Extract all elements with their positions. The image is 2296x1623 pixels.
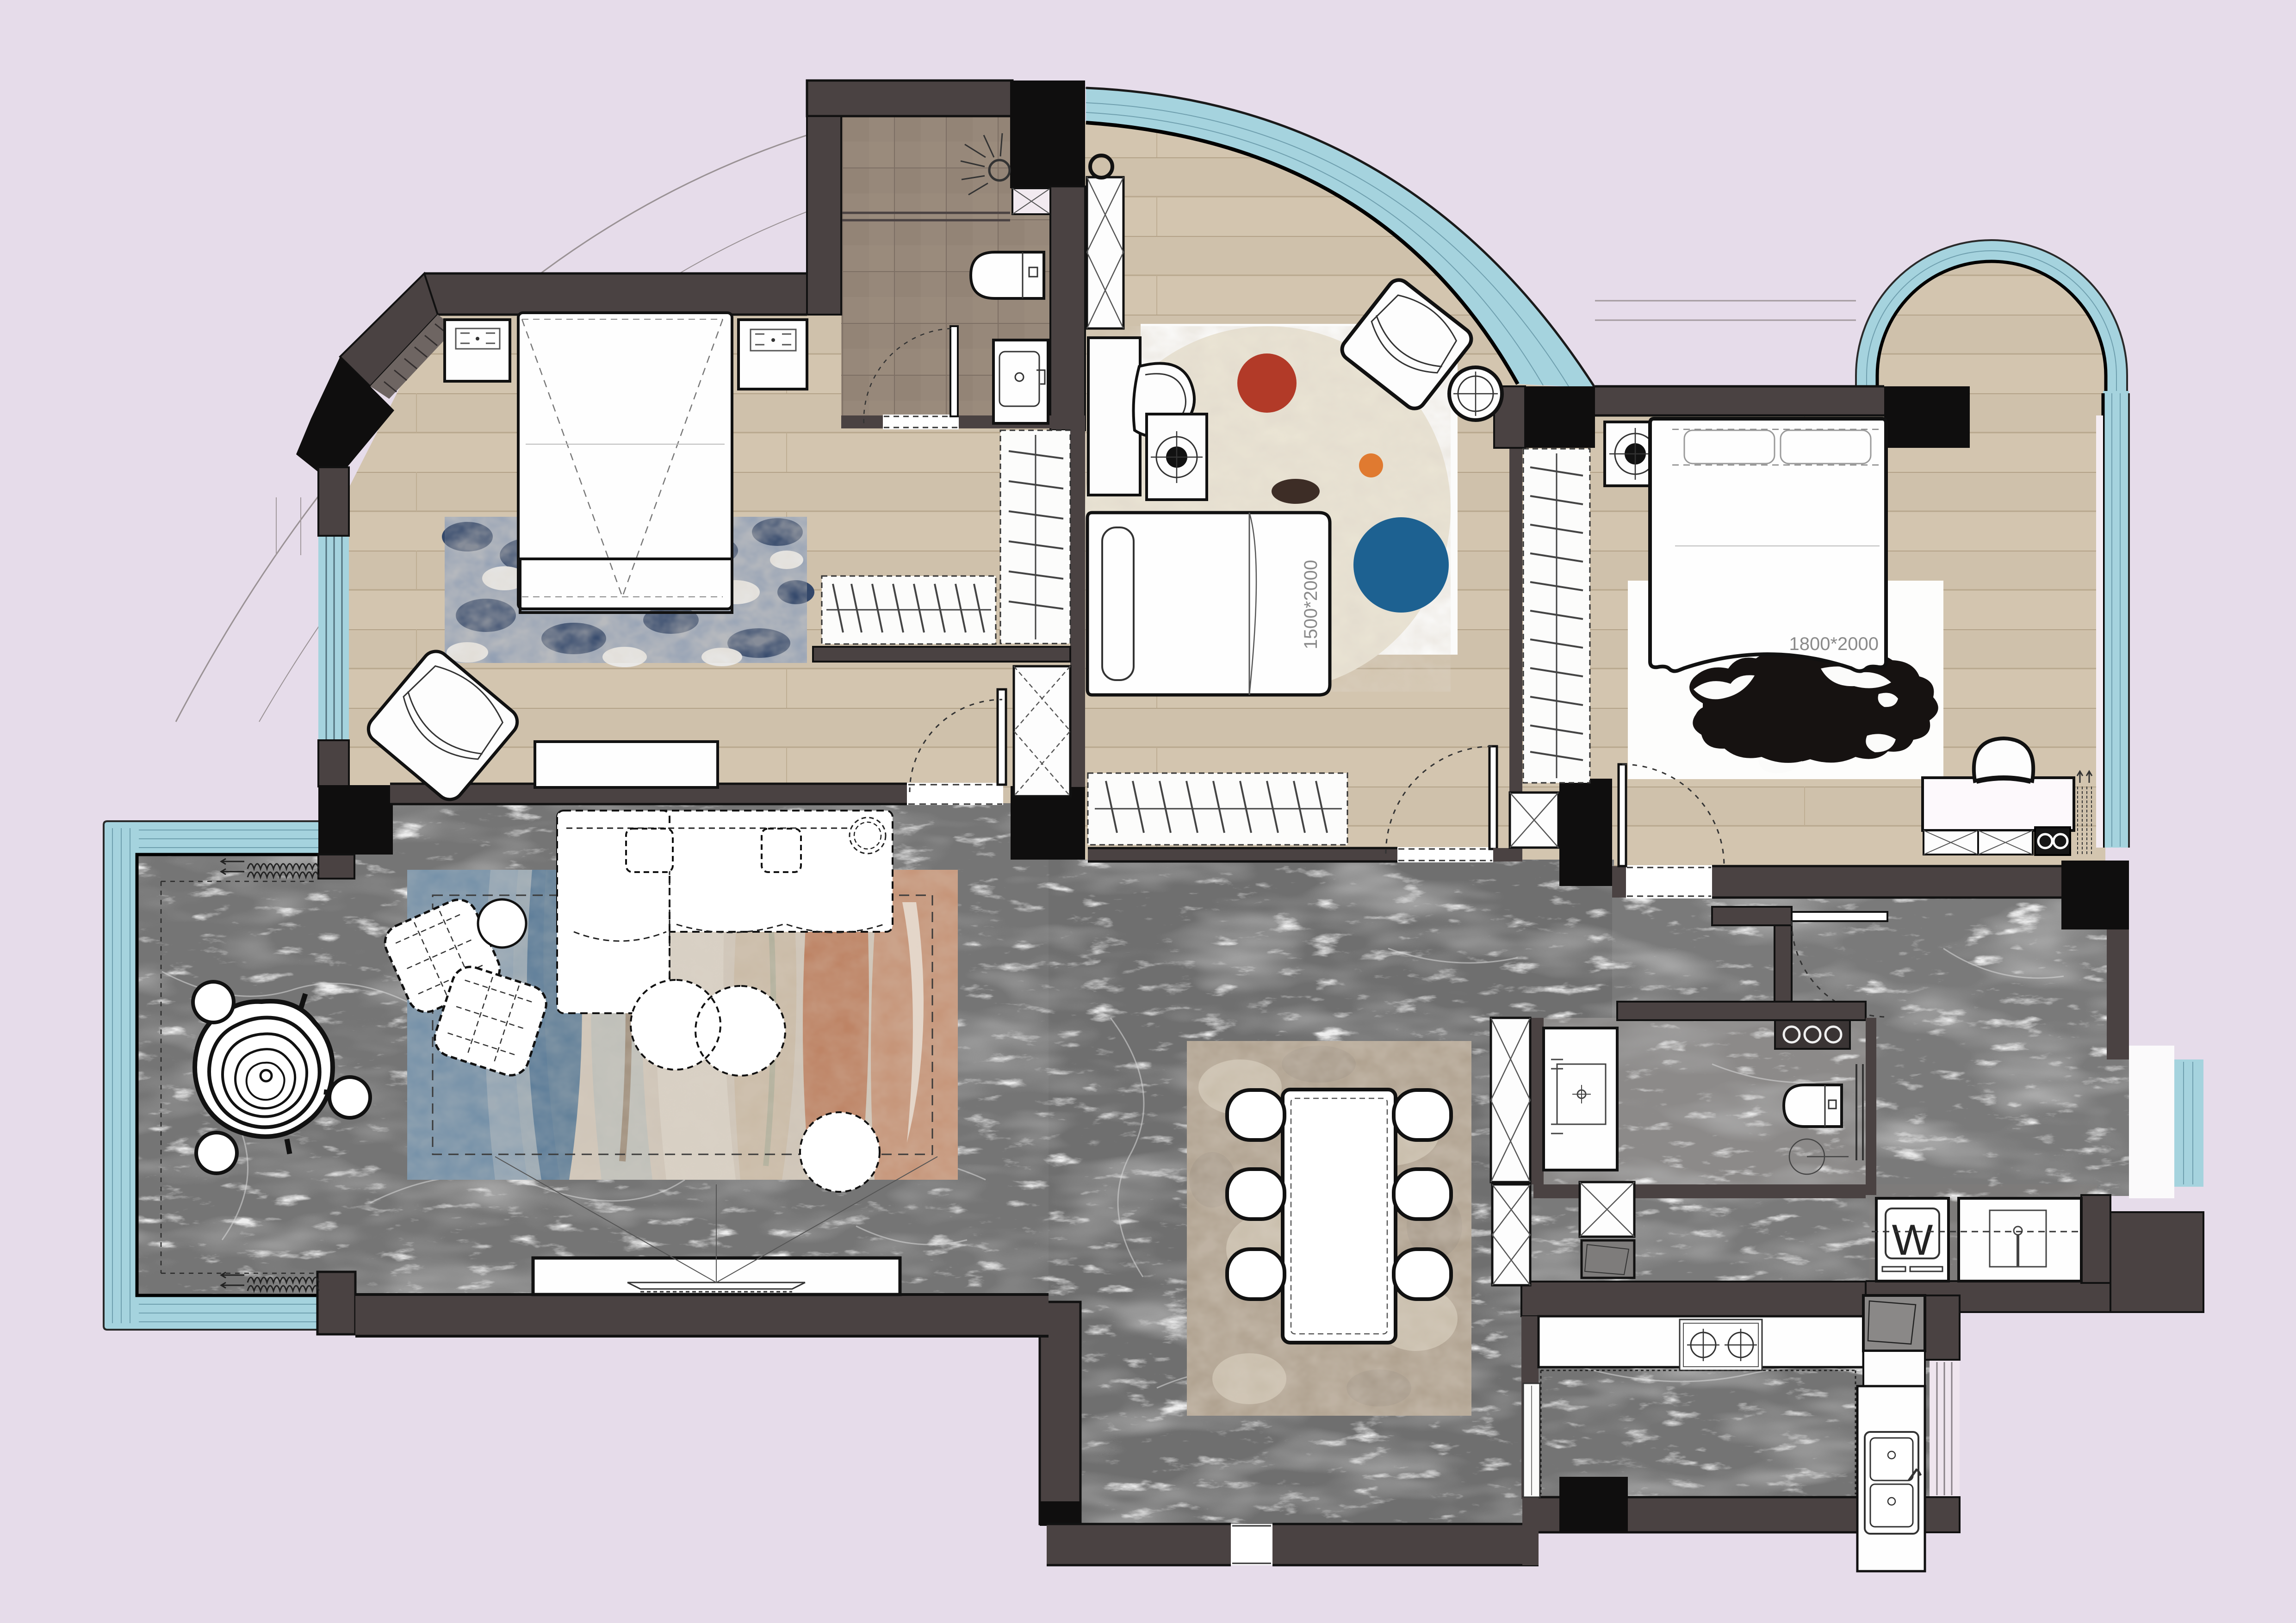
svg-text:W: W bbox=[1892, 1215, 1933, 1264]
svg-text:1500*2000: 1500*2000 bbox=[1301, 560, 1321, 650]
svg-text:1800*2000: 1800*2000 bbox=[1789, 634, 1879, 654]
